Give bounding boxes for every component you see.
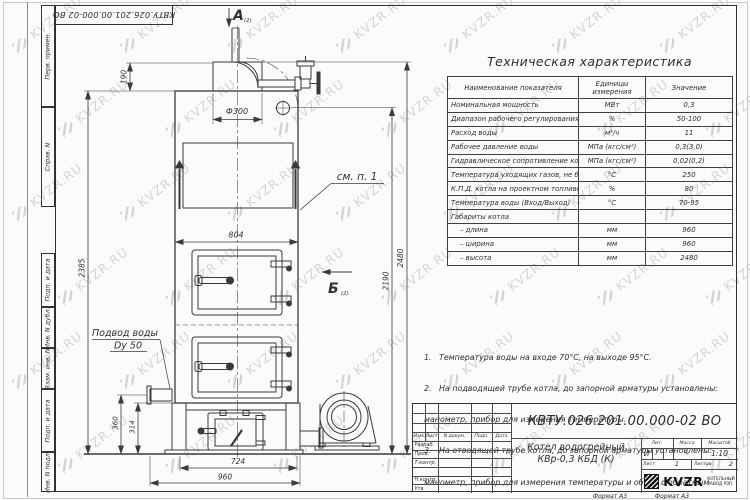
spec-cell: 0,3 xyxy=(646,99,733,113)
furnace-door-upper xyxy=(192,250,292,315)
spec-table-title: Техническая характеристика xyxy=(447,54,732,69)
spec-cell: мм xyxy=(579,224,646,238)
chimney-pipe xyxy=(232,28,239,62)
outlet-elbow xyxy=(232,62,258,88)
dim-2385: 2385 xyxy=(78,258,87,277)
spec-cell: 0,02(0,2) xyxy=(646,154,733,168)
drawing-sheet: KVZR.RUKVZR.RUKVZR.RUKVZR.RUKVZR.RUKVZR.… xyxy=(0,0,750,500)
spec-cell: 11 xyxy=(646,126,733,140)
title-block-grid-line xyxy=(471,404,472,493)
spec-cell: Температура воды (Вход/Выход) xyxy=(448,196,579,210)
rev-col-podp: Подп. xyxy=(471,432,492,441)
spec-cell xyxy=(646,210,733,224)
title-block-grid-line xyxy=(663,448,664,459)
title-block-grid-line xyxy=(413,432,511,433)
spec-cell: МПа (кгс/см²) xyxy=(579,154,646,168)
product-name-line2: КВр-0,3 КБД (К) xyxy=(511,453,641,465)
spec-row: Габариты котла xyxy=(448,210,733,224)
dim-190: 190 xyxy=(120,70,129,85)
spec-cell: Рабочее давление воды xyxy=(448,140,579,154)
product-name-line1: Котел водогрейный xyxy=(511,441,641,453)
see-note-label: см. п. 1 xyxy=(337,171,378,183)
sig-tkontr: Т.контр. xyxy=(415,458,438,467)
company-logo: KVZR КОТЕЛЬНЫЙ ЗАВОД РЭП xyxy=(641,469,738,493)
dim-2190: 2190 xyxy=(382,271,391,290)
title-block: Изм. Лист N докум. Подп. Дата Разраб. Пр… xyxy=(412,403,737,492)
title-block-grid-line xyxy=(492,404,493,493)
sig-razrab: Разраб. xyxy=(415,441,438,450)
spec-cell: мм xyxy=(579,237,646,251)
sig-utv: Утв. xyxy=(415,484,438,493)
mass-value: – xyxy=(673,448,701,459)
title-block-grid-line xyxy=(413,484,511,485)
kvzr-logo-subtext: КОТЕЛЬНЫЙ ЗАВОД РЭП xyxy=(707,476,734,486)
spec-cell: 70-95 xyxy=(646,196,733,210)
spec-row: – ширинамм960 xyxy=(448,237,733,251)
view-a-label: А xyxy=(232,8,244,24)
spec-row: Номинальная мощностьМВт0,3 xyxy=(448,99,733,113)
spec-row: Гидравлическое сопротивление котлаМПа (к… xyxy=(448,154,733,168)
spec-cell: 80 xyxy=(646,182,733,196)
upper-panel xyxy=(183,143,293,208)
title-block-grid-line xyxy=(438,404,439,493)
spec-table: Наименование показателя Единицы измерени… xyxy=(447,76,733,266)
spec-cell: °С xyxy=(579,168,646,182)
spec-cell: 50-100 xyxy=(646,112,733,126)
spec-cell: МВт xyxy=(579,99,646,113)
kvzr-logo-text: KVZR xyxy=(663,474,703,489)
spec-cell: – высота xyxy=(448,251,579,265)
dim-f300: Ф300 xyxy=(226,107,248,116)
sig-prov: Пров. xyxy=(415,450,438,459)
dim-2480: 2480 xyxy=(396,248,405,267)
note-line: 1. Температура воды на входе 70°С, на вы… xyxy=(424,353,738,363)
sig-nkontr: Н.контр. xyxy=(415,476,438,485)
spec-cell: Габариты котла xyxy=(448,210,579,224)
title-block-grid-line xyxy=(691,459,692,469)
title-block-grid-line xyxy=(641,469,738,470)
format-label-left: Формат А3 xyxy=(586,493,634,500)
title-block-grid-line xyxy=(641,459,738,460)
title-block-grid-line xyxy=(413,467,511,468)
water-inlet-stub xyxy=(147,386,172,404)
format-label-right: Формат А3 xyxy=(646,493,698,500)
view-b-sub: (2) xyxy=(341,291,349,297)
view-a-sub: (2) xyxy=(244,18,252,24)
spec-row: Температура уходящих газов, не более°С25… xyxy=(448,168,733,182)
safety-valve xyxy=(295,56,320,94)
spec-row: Рабочее давление водыМПа (кгс/см²)0,3(3,… xyxy=(448,140,733,154)
title-block-grid-line xyxy=(413,450,511,451)
sheet-value: 1 xyxy=(671,459,683,469)
title-block-grid-line xyxy=(413,441,511,442)
panel-pin-left xyxy=(176,161,184,209)
see-note-leader xyxy=(300,184,384,211)
spec-header: Значение xyxy=(646,77,733,99)
spec-cell: Расход воды xyxy=(448,126,579,140)
dim-360: 360 xyxy=(112,416,120,430)
title-block-grid-line xyxy=(413,413,511,414)
spec-row: К.П.Д. котла на проектном топливе%80 xyxy=(448,182,733,196)
dim-314: 314 xyxy=(129,420,137,433)
title-block-grid-line xyxy=(641,448,738,449)
title-block-grid-line xyxy=(413,458,511,459)
dimension-lines xyxy=(88,62,407,483)
spec-cell: °С xyxy=(579,196,646,210)
spec-cell: 2480 xyxy=(646,251,733,265)
spec-row: Температура воды (Вход/Выход)°С70-95 xyxy=(448,196,733,210)
title-block-grid-line xyxy=(652,448,653,459)
boiler-body xyxy=(175,91,298,403)
spec-cell: 960 xyxy=(646,237,733,251)
rev-col-list: Лист xyxy=(425,432,438,441)
rev-col-data: Дата xyxy=(492,432,511,441)
spec-cell: % xyxy=(579,112,646,126)
title-block-grid-line xyxy=(511,438,738,439)
dim-804: 804 xyxy=(228,231,243,240)
boiler-geometry xyxy=(84,8,411,486)
view-b-label: Б xyxy=(328,281,339,297)
rev-col-izm: Изм. xyxy=(413,432,425,441)
vent-fitting xyxy=(275,100,291,116)
spec-header: Единицы измерения xyxy=(579,77,646,99)
sheets-value: 2 xyxy=(726,459,736,469)
sheets-label: Листов xyxy=(694,459,718,469)
spec-header-row: Наименование показателя Единицы измерени… xyxy=(448,77,733,99)
spec-cell: м³/ч xyxy=(579,126,646,140)
spec-cell: мм xyxy=(579,251,646,265)
furnace-door-lower xyxy=(192,337,292,398)
spec-cell: % xyxy=(579,182,646,196)
spec-row: Диапазон рабочего регулирования%50-100 xyxy=(448,112,733,126)
valve-handwheel xyxy=(317,72,320,94)
lit-value: И xyxy=(641,448,652,459)
dim-960: 960 xyxy=(218,473,233,482)
ash-section xyxy=(165,403,303,454)
note-line: 2. На подводящей трубе котла, до запорно… xyxy=(424,384,738,394)
spec-row: – высотамм2480 xyxy=(448,251,733,265)
spec-cell: Диапазон рабочего регулирования xyxy=(448,112,579,126)
spec-row: Расход водым³/ч11 xyxy=(448,126,733,140)
spec-cell: 960 xyxy=(646,224,733,238)
spec-row: – длинамм960 xyxy=(448,224,733,238)
spec-cell xyxy=(579,210,646,224)
rev-col-ndokum: N докум. xyxy=(438,432,471,441)
dim-724: 724 xyxy=(231,457,246,466)
title-block-grid-line xyxy=(413,423,511,424)
spec-cell: Гидравлическое сопротивление котла xyxy=(448,154,579,168)
blower-fan xyxy=(300,391,379,450)
water-inlet-label-2: Dy 50 xyxy=(114,341,142,352)
kvzr-logo-icon xyxy=(644,474,659,489)
spec-cell: 250 xyxy=(646,168,733,182)
spec-cell: Номинальная мощность xyxy=(448,99,579,113)
spec-cell: – ширина xyxy=(448,237,579,251)
spec-header: Наименование показателя xyxy=(448,77,579,99)
spec-cell: 0,3(3,0) xyxy=(646,140,733,154)
spec-cell: МПа (кгс/см²) xyxy=(579,140,646,154)
scale-value: 1:10 xyxy=(701,448,738,459)
title-block-grid-line xyxy=(511,404,512,493)
scale-label: Масштаб xyxy=(701,438,738,448)
title-block-grid-line xyxy=(641,438,642,493)
lit-label: Лит. xyxy=(641,438,673,448)
spec-cell: – длина xyxy=(448,224,579,238)
title-doc-number: КВТУ.026.201.00.000-02 ВО xyxy=(511,405,738,437)
spec-cell: К.П.Д. котла на проектном топливе xyxy=(448,182,579,196)
mass-label: Масса xyxy=(673,438,701,448)
sheet-label: Лист xyxy=(643,459,661,469)
title-block-grid-line xyxy=(413,476,511,477)
outlet-pipe xyxy=(258,80,295,87)
kvzr-logo-sub2: ЗАВОД РЭП xyxy=(707,481,734,486)
water-inlet-label-1: Подвод воды xyxy=(92,328,159,339)
spec-cell: Температура уходящих газов, не более xyxy=(448,168,579,182)
